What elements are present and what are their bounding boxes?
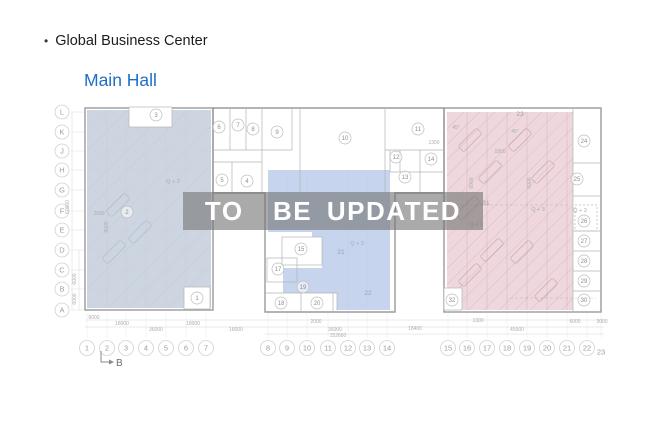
dimension-label: 3000 (104, 221, 110, 232)
dimension-label: 3000 (596, 319, 607, 325)
room-label-25: 25 (574, 177, 581, 183)
room-label-23: 23 (516, 111, 524, 118)
row-label-text-A: A (59, 306, 64, 315)
column-label-text-18: 18 (503, 344, 511, 353)
column-label-text-15: 15 (444, 344, 452, 353)
section-arrow-icon (109, 360, 114, 365)
column-label-text-5: 5 (164, 344, 168, 353)
dimension-label: 6000 (88, 315, 99, 321)
room-label-10: 10 (342, 136, 349, 142)
room-label-18: 18 (278, 301, 285, 307)
dimension-label: 18000 (115, 321, 129, 327)
dimension-label: 1300 (428, 140, 439, 146)
room-label-29: 29 (581, 279, 588, 285)
dimension-label: 45° (452, 125, 460, 131)
dimension-label: 45° (511, 129, 519, 135)
dimension-label: 45000 (510, 327, 524, 333)
column-label-text-14: 14 (383, 344, 391, 353)
room-label-11: 11 (415, 127, 422, 133)
column-label-text-9: 9 (285, 344, 289, 353)
room-label-31: 31 (482, 200, 490, 207)
dimension-label: 152660 (330, 333, 347, 339)
page-title: Global Business Center (55, 33, 207, 49)
column-label-text-7: 7 (204, 344, 208, 353)
row-label-text-D: D (59, 246, 65, 255)
room-label-19: 19 (300, 285, 307, 291)
room-label-22: 22 (364, 290, 372, 297)
row-label-text-J: J (60, 147, 64, 156)
dimension-label: 36000 (149, 327, 163, 333)
room-label-30: 30 (581, 298, 588, 304)
column-label-text-8: 8 (266, 344, 270, 353)
elevation-label: Q + 3 (350, 241, 364, 247)
column-label-text-4: 4 (144, 344, 148, 353)
dimension-label: 18000 (229, 327, 243, 333)
column-label-text-23: 23 (597, 348, 605, 357)
room-label-26: 26 (581, 219, 588, 225)
column-label-text-11: 11 (324, 344, 332, 353)
column-label-text-6: 6 (184, 344, 188, 353)
room-label-20: 20 (314, 301, 321, 307)
row-label-text-H: H (59, 166, 64, 175)
column-label-text-19: 19 (523, 344, 531, 353)
column-label-text-20: 20 (543, 344, 551, 353)
dimension-label: 6000 (469, 177, 475, 188)
dimension-label: 6000 (527, 177, 533, 188)
dimension-label: 1800 (494, 149, 505, 155)
page-subtitle: Main Hall (84, 70, 157, 91)
row-label-text-L: L (60, 108, 64, 117)
marker-b-label: B (116, 358, 123, 369)
room-label-13: 13 (402, 175, 409, 181)
room-label-15: 15 (298, 247, 305, 253)
dimension-label: 18400 (408, 326, 422, 332)
dimension-label: 2600 (93, 211, 104, 217)
dimension-label: 18000 (186, 321, 200, 327)
room-label-17: 17 (275, 267, 282, 273)
column-label-text-1: 1 (85, 344, 89, 353)
dimension-label: 2000 (310, 319, 321, 325)
row-label-text-C: C (59, 266, 65, 275)
column-label-text-2: 2 (105, 344, 109, 353)
row-label-text-F: F (60, 207, 65, 216)
column-label-text-3: 3 (124, 344, 128, 353)
room-label-32: 32 (449, 298, 456, 304)
dimension-label: 6000 (72, 273, 78, 284)
dimension-label: 6000 (72, 293, 78, 304)
column-label-text-22: 22 (583, 344, 591, 353)
room-label-14: 14 (428, 157, 435, 163)
room-label-24: 24 (581, 139, 588, 145)
column-label-text-17: 17 (483, 344, 491, 353)
bullet-icon: • (44, 35, 48, 47)
elevation-label: Q + 3 (531, 207, 545, 213)
dimension-label: 6000 (569, 319, 580, 325)
column-label-text-21: 21 (563, 344, 571, 353)
watermark-text: TO BE UPDATED (205, 196, 461, 227)
page-header: • Global Business Center (44, 33, 208, 49)
watermark: TO BE UPDATED (183, 192, 483, 230)
dimension-label: 60000 (65, 200, 71, 214)
column-label-text-10: 10 (303, 344, 311, 353)
elevation-label: Q + 3 (166, 179, 180, 185)
column-label-text-12: 12 (344, 344, 352, 353)
dimension-label: 1300 (472, 318, 483, 324)
page: LKJHGFEDCBA 1234567891011121314151617181… (0, 0, 660, 440)
row-label-text-K: K (59, 128, 64, 137)
row-label-text-G: G (59, 186, 65, 195)
row-label-text-E: E (59, 226, 64, 235)
row-label-text-B: B (59, 285, 64, 294)
room-label-21: 21 (337, 249, 345, 256)
room-label-27: 27 (581, 239, 588, 245)
room-label-28: 28 (581, 259, 588, 265)
elevation-label: Q + 3 (573, 208, 587, 214)
room-label-12: 12 (393, 155, 400, 161)
column-label-text-16: 16 (463, 344, 471, 353)
column-label-text-13: 13 (363, 344, 371, 353)
